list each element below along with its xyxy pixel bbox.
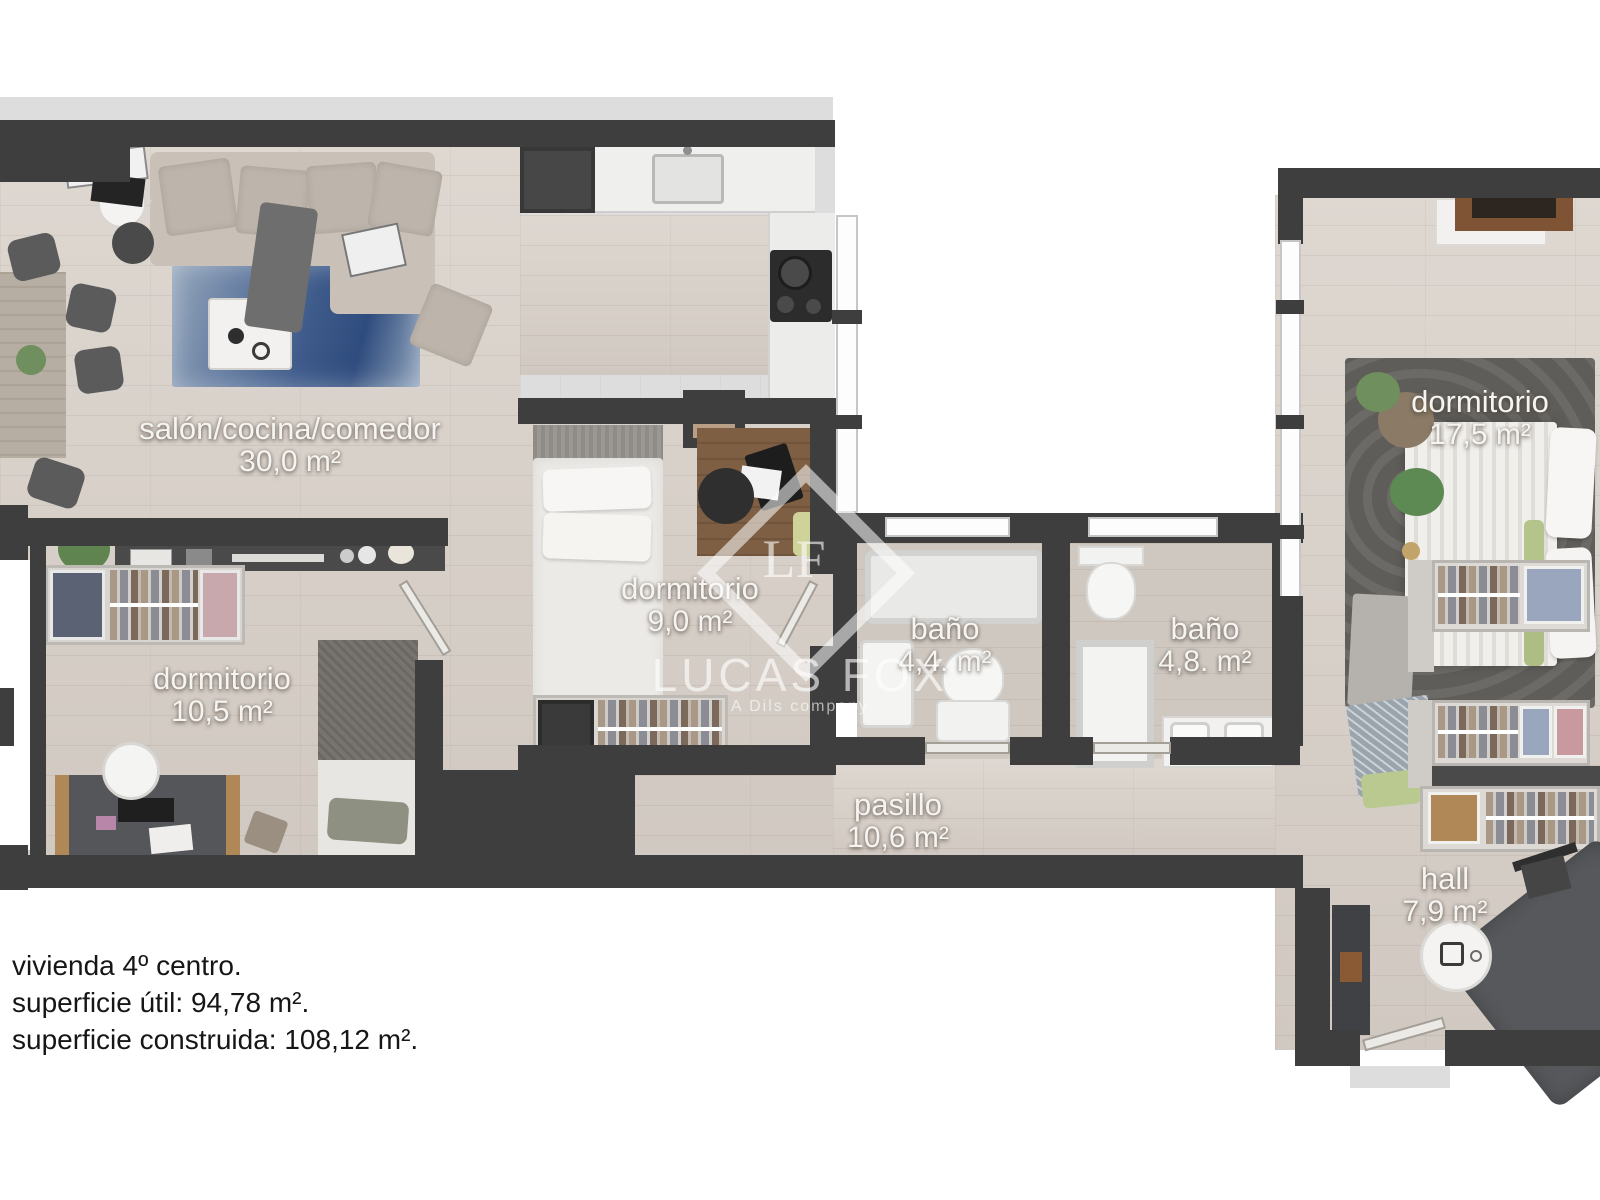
lucas-fox-brand-text: LUCAS FOX: [640, 648, 960, 702]
bottom-wall-hallway: [635, 855, 1303, 888]
dining-chair: [73, 345, 125, 395]
bedroom17-window-tick: [1276, 300, 1304, 314]
bedroom17-window-tick: [1276, 525, 1304, 539]
hall-table-decor: [1440, 942, 1464, 966]
room-label-dormitorio-17: dormitorio 17,5 m²: [1350, 385, 1600, 453]
plan-info-line1: vivienda 4º centro.: [12, 948, 418, 985]
right-wing-top-wall: [1278, 168, 1600, 198]
balcony-wall-fragment: [0, 505, 28, 560]
desk10-keyboard: [118, 798, 174, 822]
room-name: pasillo: [808, 788, 988, 821]
kitchen-window-tick: [832, 310, 862, 324]
bedroom10-right-wall: [415, 660, 443, 858]
room-label-dormitorio-10: dormitorio 10,5 m²: [92, 662, 352, 730]
kitchen-window: [836, 215, 858, 513]
desk10-chair: [102, 742, 160, 800]
wardrobeB-linen-blue: [1520, 706, 1552, 758]
hall-console-books: [1340, 952, 1362, 982]
bedroom10-left-wall: [30, 546, 46, 858]
shelf10-sphere: [358, 546, 376, 564]
kitchen-faucet: [683, 146, 692, 155]
room-area: 10,5 m²: [92, 695, 352, 730]
lucas-fox-subtitle-text: A Dils company: [640, 698, 960, 716]
shelf10-sphere: [340, 549, 354, 563]
bedroom17-window-tick: [1276, 415, 1304, 429]
floor-plan: salón/cocina/comedor 30,0 m² dormitorio …: [0, 0, 1600, 1200]
shelf10-tray: [232, 554, 324, 562]
desk9-chair: [698, 468, 754, 524]
dining-plant: [16, 345, 46, 375]
kitchen-wood-floor: [520, 215, 768, 375]
fridge: [520, 147, 595, 213]
room-label-salon: salón/cocina/comedor 30,0 m²: [130, 412, 450, 480]
room-name: baño: [855, 612, 1035, 645]
room-name: salón/cocina/comedor: [130, 412, 450, 445]
room-name: dormitorio: [1350, 385, 1600, 418]
throw17-gray: [1347, 593, 1417, 708]
hall-table-decor-dot: [1470, 950, 1482, 962]
corner-wall-topleft: [0, 120, 130, 182]
wardrobeC-rail: [1486, 816, 1594, 820]
bathroom1-bottom-wall-right: [1010, 737, 1045, 765]
bathroom1-door-leaf: [925, 742, 1010, 754]
bed9-pillow: [542, 512, 652, 562]
plan-info-line3: superficie construida: 108,12 m².: [12, 1022, 418, 1059]
lucas-fox-monogram: LF: [744, 528, 844, 590]
living-bedroom-divider-wall: [0, 518, 448, 546]
wardrobeA-rail: [1438, 593, 1520, 597]
room-label-pasillo: pasillo 10,6 m²: [808, 788, 988, 856]
room-area: 10,6 m²: [808, 821, 988, 856]
wardrobe-divider: [1432, 766, 1600, 786]
side-table-round-dark: [112, 222, 154, 264]
bed9-headboard: [533, 425, 663, 461]
bathroom2-window: [1088, 517, 1218, 537]
room-area: 30,0 m²: [130, 445, 450, 480]
wardrobe10-linen-left: [50, 570, 105, 640]
bed9-pillow: [542, 466, 651, 512]
wardrobe10-linen-right: [200, 570, 240, 640]
bathroom2-door-leaf: [1093, 742, 1171, 754]
bedroom9-top-wall: [518, 398, 836, 424]
plan-info-line2: superficie útil: 94,78 m².: [12, 985, 418, 1022]
room-area: 4,8. m²: [1115, 645, 1295, 680]
wardrobe10-rail: [110, 603, 198, 607]
kitchen-sink: [652, 154, 724, 204]
terrace-edge-top: [0, 97, 833, 122]
plant17-green: [1390, 468, 1444, 516]
room-name: hall: [1360, 862, 1530, 895]
room-label-bano-48: baño 4,8. m²: [1115, 612, 1295, 680]
entry-landing: [1350, 1066, 1450, 1088]
plan-info-text: vivienda 4º centro. superficie útil: 94,…: [12, 948, 418, 1059]
wardrobeB-rail: [1438, 730, 1518, 734]
decor17-gold: [1402, 542, 1420, 560]
bathroom1-window: [885, 517, 1010, 537]
right-wing-left-wall-upper: [1278, 168, 1303, 244]
bathrooms-divider-wall: [1042, 543, 1070, 765]
cooktop-burner-large: [778, 256, 812, 290]
coffee-table-decor: [228, 328, 244, 344]
cooktop-burner-small: [806, 299, 821, 314]
bed10-pillow: [327, 797, 410, 844]
kitchen-window-tick: [832, 415, 862, 429]
bathroom1-bottom-wall-left: [833, 737, 925, 765]
balcony-wall-fragment: [0, 845, 28, 890]
wardrobeB-side: [1408, 700, 1434, 788]
wall-block-center: [443, 770, 635, 858]
coffee-table-flower: [252, 342, 270, 360]
room-name: baño: [1115, 612, 1295, 645]
balcony-wall-fragment: [0, 688, 14, 746]
room-label-hall: hall 7,9 m²: [1360, 862, 1530, 930]
room-area: 17,5 m²: [1350, 418, 1600, 453]
cooktop-burner-small: [777, 296, 794, 313]
wardrobeC-box: [1428, 792, 1480, 844]
desk10-papers: [149, 824, 193, 854]
sofa-cushion: [157, 157, 238, 236]
room-name: dormitorio: [92, 662, 352, 695]
wardrobe9-rail: [598, 727, 722, 731]
bottom-wall-left-wing: [15, 855, 635, 888]
dining-chair: [64, 282, 118, 335]
room-area: 7,9 m²: [1360, 895, 1530, 930]
bedroom9-bottom-wall: [518, 745, 836, 775]
desk10-pink-item: [96, 816, 116, 830]
wardrobeA-side: [1408, 560, 1434, 672]
bathroom2-bottom-wall-left: [1045, 737, 1093, 765]
hall-bottom-wall-left: [1295, 1030, 1360, 1066]
wardrobeA-linen: [1524, 566, 1584, 624]
hall-bottom-wall-right: [1445, 1030, 1600, 1066]
wardrobeB-linen-pink: [1554, 706, 1586, 758]
